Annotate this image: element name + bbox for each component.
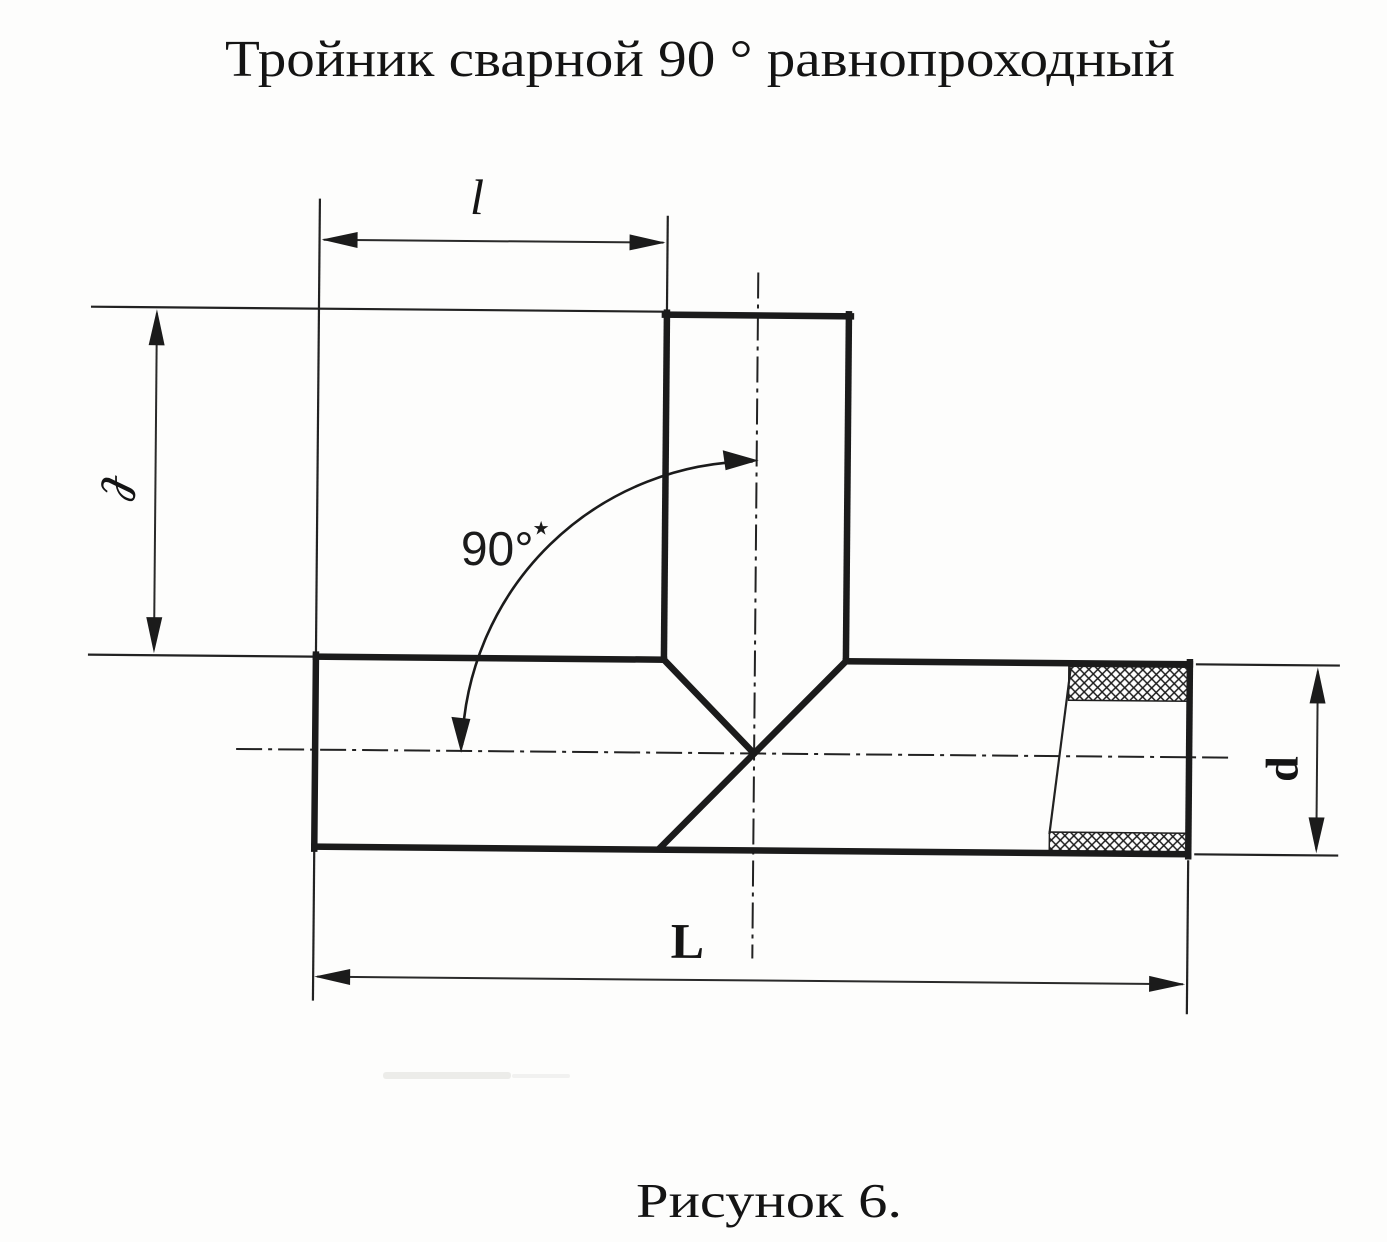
- drawing-title: Тройник сварной 90 ° равнопроходный: [225, 31, 1175, 88]
- tee-drawing: l ℓ L d 90° ★: [83, 166, 1344, 1016]
- arrow-ell-bottom: [146, 617, 162, 653]
- ext-diameter-bottom: [1194, 854, 1338, 855]
- pipe-wall-section: [1049, 666, 1188, 852]
- dim-label-l: l: [470, 169, 484, 225]
- weld-seam-left: [663, 660, 755, 754]
- dim-label-L: L: [671, 913, 705, 969]
- angle-footnote-star: ★: [532, 519, 549, 540]
- ext-left-end-lower: [313, 851, 314, 1001]
- branch-top-edge: [665, 315, 851, 317]
- pipe-top-edge-left: [316, 657, 664, 660]
- pipe-top-edge-right: [846, 661, 1190, 664]
- tee-outline: [314, 310, 1193, 857]
- wall-hatch-top: [1069, 666, 1188, 701]
- ext-right-end-lower: [1187, 860, 1188, 1014]
- arrow-ell-top: [149, 309, 165, 345]
- section-break-line: [1049, 667, 1070, 834]
- dim-label-ell: ℓ: [87, 468, 151, 506]
- dim-line-ell: [154, 313, 157, 649]
- arrow-L-left: [314, 969, 350, 985]
- arrow-d-top: [1310, 667, 1326, 703]
- dim-line-L: [317, 977, 1183, 985]
- arrowheads: [143, 230, 1330, 993]
- dim-line-l: [324, 240, 664, 243]
- arrow-l-left: [321, 232, 357, 248]
- extension-lines: [85, 197, 1344, 1016]
- arrow-L-right: [1149, 976, 1185, 992]
- arrow-d-bottom: [1308, 817, 1324, 853]
- wall-hatch-bottom: [1049, 832, 1186, 852]
- pipe-left-end-cap: [314, 655, 316, 849]
- branch-left-wall: [664, 313, 667, 660]
- dimension-lines: [151, 238, 1321, 985]
- centerlines: [234, 268, 1233, 963]
- figure-caption: Рисунок 6.: [636, 1173, 902, 1228]
- ext-left-end-upper: [316, 199, 320, 653]
- arrow-arc-top: [723, 450, 759, 470]
- arrow-arc-bottom: [451, 717, 470, 753]
- ext-pipe-top-level: [88, 655, 313, 657]
- ext-branch-wall-upper: [667, 216, 668, 312]
- dim-label-d: d: [1256, 756, 1307, 782]
- arrow-l-right: [629, 234, 665, 250]
- ext-branch-top-level: [91, 307, 664, 312]
- pipe-right-end-cap: [1188, 662, 1190, 856]
- vertical-centerline: [752, 272, 758, 958]
- horizontal-centerline: [236, 749, 1229, 758]
- branch-right-wall: [846, 314, 849, 661]
- scanned-drawing-page: Тройник сварной 90 ° равнопроходный Рису…: [0, 0, 1387, 1242]
- angle-label: 90°: [461, 523, 534, 577]
- drawing-sheet: Тройник сварной 90 ° равнопроходный Рису…: [0, 0, 1387, 1242]
- scan-smudge: [383, 1072, 570, 1079]
- ext-diameter-top: [1196, 664, 1340, 665]
